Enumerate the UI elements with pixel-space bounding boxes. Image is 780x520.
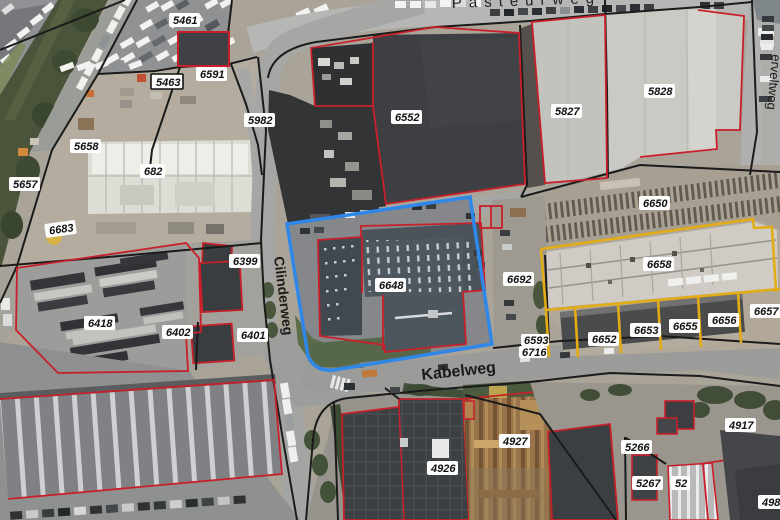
svg-text:4982: 4982 [761, 497, 780, 509]
svg-text:6593: 6593 [524, 335, 548, 347]
svg-text:6716: 6716 [522, 347, 547, 359]
svg-text:5828: 5828 [648, 86, 673, 98]
svg-text:5463: 5463 [156, 77, 180, 89]
svg-text:682: 682 [144, 166, 162, 178]
svg-text:6648: 6648 [379, 280, 404, 292]
svg-text:6655: 6655 [673, 321, 698, 333]
svg-text:6399: 6399 [233, 256, 258, 268]
svg-text:6552: 6552 [395, 112, 419, 124]
svg-text:6418: 6418 [88, 318, 113, 330]
svg-text:6652: 6652 [592, 334, 616, 346]
svg-text:5658: 5658 [74, 141, 99, 153]
svg-text:4926: 4926 [430, 463, 456, 475]
svg-text:6657: 6657 [754, 306, 779, 318]
svg-text:52: 52 [675, 478, 687, 490]
svg-text:6402: 6402 [166, 327, 190, 339]
svg-text:6401: 6401 [241, 330, 265, 342]
svg-text:6653: 6653 [634, 325, 658, 337]
svg-text:5982: 5982 [248, 115, 272, 127]
svg-text:5266: 5266 [625, 442, 650, 454]
svg-text:6692: 6692 [507, 274, 531, 286]
svg-text:5461: 5461 [173, 15, 197, 27]
svg-text:4927: 4927 [502, 436, 528, 448]
svg-text:4917: 4917 [728, 420, 754, 432]
svg-text:6658: 6658 [647, 259, 672, 271]
svg-text:6591: 6591 [200, 69, 224, 81]
svg-text:5657: 5657 [13, 179, 38, 191]
svg-text:6656: 6656 [712, 315, 737, 327]
svg-text:5267: 5267 [636, 478, 661, 490]
svg-text:6650: 6650 [643, 198, 668, 210]
svg-text:5827: 5827 [555, 106, 580, 118]
